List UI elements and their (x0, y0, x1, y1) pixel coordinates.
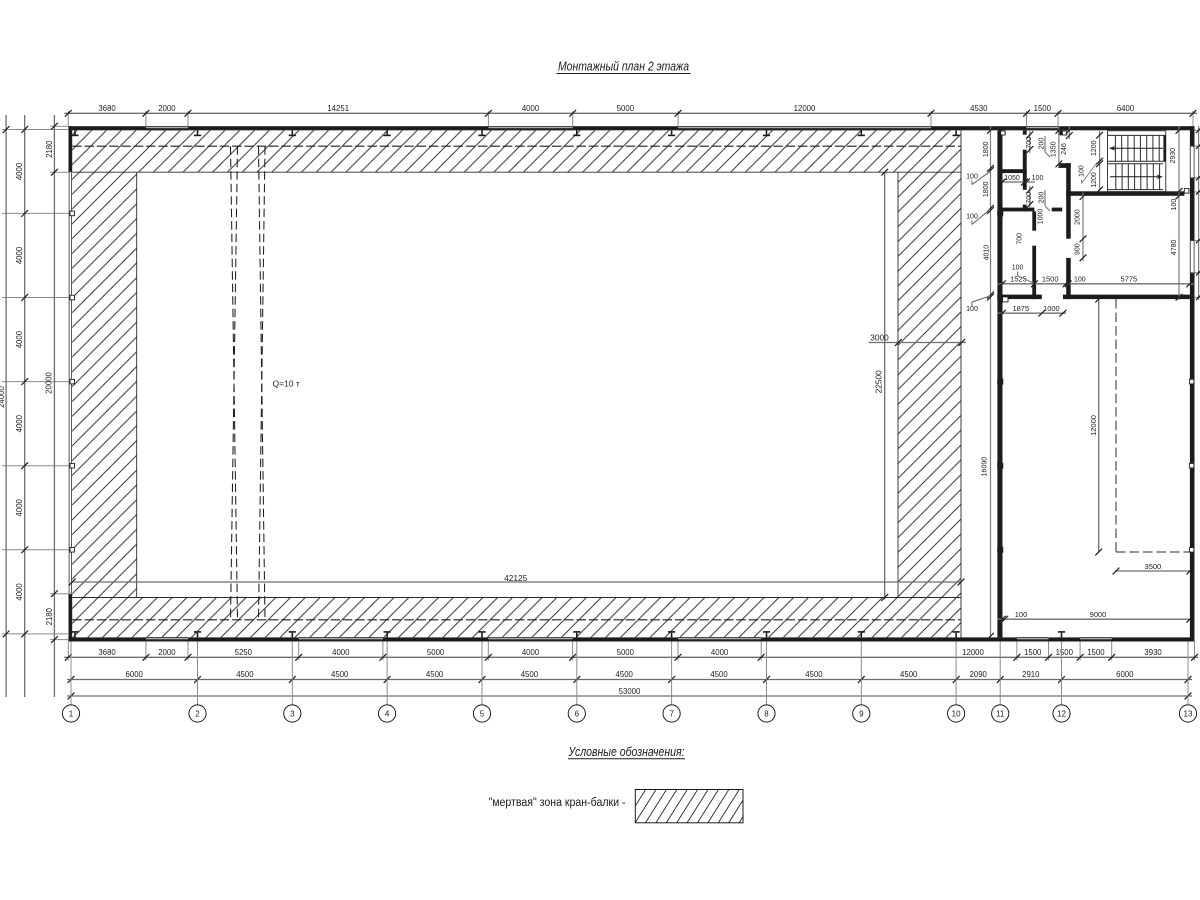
svg-text:100: 100 (1074, 277, 1086, 284)
svg-text:42125: 42125 (504, 573, 527, 583)
svg-text:700: 700 (1026, 137, 1033, 149)
svg-text:5: 5 (480, 709, 485, 718)
svg-text:100: 100 (966, 213, 978, 220)
svg-text:13: 13 (1184, 709, 1193, 718)
svg-text:3680: 3680 (98, 104, 116, 113)
svg-text:5000: 5000 (427, 648, 445, 657)
svg-text:2: 2 (195, 709, 200, 718)
svg-text:4500: 4500 (426, 670, 444, 679)
svg-text:4000: 4000 (522, 104, 540, 113)
svg-text:1500: 1500 (1034, 104, 1052, 113)
svg-text:4000: 4000 (15, 498, 24, 516)
svg-text:5775: 5775 (1121, 275, 1138, 284)
svg-text:4000: 4000 (711, 648, 729, 657)
svg-text:4500: 4500 (236, 670, 254, 679)
svg-text:1500: 1500 (1042, 275, 1059, 284)
svg-text:100: 100 (1012, 265, 1024, 272)
svg-text:5000: 5000 (617, 104, 635, 113)
svg-text:2000: 2000 (1075, 209, 1082, 225)
svg-text:6400: 6400 (1117, 104, 1135, 113)
svg-text:4530: 4530 (970, 104, 988, 113)
svg-text:2930: 2930 (1170, 148, 1177, 164)
svg-text:4000: 4000 (15, 330, 24, 348)
svg-text:100: 100 (1078, 165, 1085, 177)
svg-text:4500: 4500 (710, 670, 728, 679)
svg-text:4000: 4000 (332, 648, 350, 657)
svg-text:8: 8 (764, 709, 769, 718)
svg-text:16090: 16090 (981, 457, 988, 477)
svg-text:700: 700 (1026, 192, 1033, 204)
svg-text:24000: 24000 (0, 385, 6, 407)
svg-text:4780: 4780 (1171, 240, 1178, 256)
svg-text:2180: 2180 (45, 607, 54, 625)
svg-text:20000: 20000 (45, 371, 54, 393)
svg-text:10: 10 (952, 709, 961, 718)
svg-text:7: 7 (669, 709, 674, 718)
svg-text:3680: 3680 (98, 648, 116, 657)
svg-text:4000: 4000 (15, 246, 24, 264)
svg-text:6: 6 (575, 709, 580, 718)
svg-text:4500: 4500 (616, 670, 634, 679)
svg-text:1500: 1500 (1024, 648, 1042, 657)
svg-text:1200: 1200 (1091, 172, 1098, 188)
svg-text:4000: 4000 (522, 648, 540, 657)
svg-text:9: 9 (859, 709, 864, 718)
svg-text:2090: 2090 (970, 670, 988, 679)
svg-text:1500: 1500 (1087, 648, 1105, 657)
svg-text:100: 100 (1032, 175, 1044, 182)
svg-text:11: 11 (996, 709, 1005, 718)
svg-text:3000: 3000 (870, 332, 889, 342)
svg-text:12: 12 (1057, 709, 1066, 718)
svg-text:4: 4 (385, 709, 390, 718)
svg-text:"мертвая" зона кран-балки -: "мертвая" зона кран-балки - (489, 797, 626, 809)
svg-text:4500: 4500 (805, 670, 823, 679)
svg-text:22500: 22500 (873, 370, 883, 393)
svg-text:100: 100 (966, 306, 978, 313)
svg-text:4000: 4000 (15, 414, 24, 432)
svg-text:9000: 9000 (1090, 610, 1107, 619)
svg-text:Монтажный план 2 этажа: Монтажный план 2 этажа (558, 59, 689, 74)
svg-text:1350: 1350 (1051, 141, 1058, 157)
svg-text:53000: 53000 (619, 687, 641, 696)
svg-text:4000: 4000 (15, 583, 24, 601)
svg-text:Q=10 т: Q=10 т (273, 379, 300, 389)
svg-text:1800: 1800 (983, 141, 990, 157)
svg-text:Условные обозначения:: Условные обозначения: (568, 745, 685, 759)
svg-text:4500: 4500 (331, 670, 349, 679)
svg-text:1875: 1875 (1012, 304, 1029, 313)
svg-text:12000: 12000 (794, 104, 816, 113)
svg-text:2000: 2000 (158, 648, 176, 657)
svg-text:5000: 5000 (617, 648, 635, 657)
svg-text:1800: 1800 (983, 181, 990, 197)
svg-text:2910: 2910 (1022, 670, 1040, 679)
svg-text:1200: 1200 (1091, 140, 1098, 156)
svg-text:100: 100 (1015, 610, 1028, 619)
svg-text:4500: 4500 (521, 670, 539, 679)
svg-text:1050: 1050 (1004, 175, 1020, 182)
svg-text:2180: 2180 (45, 140, 54, 158)
svg-text:3: 3 (290, 709, 295, 718)
svg-text:4000: 4000 (15, 162, 24, 180)
svg-text:1000: 1000 (1038, 209, 1045, 225)
svg-text:4500: 4500 (900, 670, 918, 679)
svg-text:4010: 4010 (983, 245, 990, 261)
svg-text:12000: 12000 (1089, 415, 1098, 436)
svg-text:1500: 1500 (1056, 648, 1074, 657)
svg-text:5250: 5250 (235, 648, 253, 657)
svg-text:1: 1 (69, 709, 74, 718)
svg-text:14251: 14251 (327, 104, 349, 113)
svg-text:700: 700 (1017, 233, 1024, 245)
svg-text:6000: 6000 (126, 670, 144, 679)
svg-text:1000: 1000 (1043, 304, 1060, 313)
svg-text:3500: 3500 (1145, 562, 1162, 571)
svg-text:100: 100 (1171, 199, 1178, 211)
svg-text:100: 100 (966, 173, 978, 180)
svg-text:246: 246 (1061, 143, 1068, 155)
svg-text:3930: 3930 (1144, 648, 1162, 657)
svg-text:900: 900 (1075, 243, 1082, 255)
svg-text:12000: 12000 (962, 648, 984, 657)
svg-text:6000: 6000 (1116, 670, 1134, 679)
svg-text:2000: 2000 (158, 104, 176, 113)
